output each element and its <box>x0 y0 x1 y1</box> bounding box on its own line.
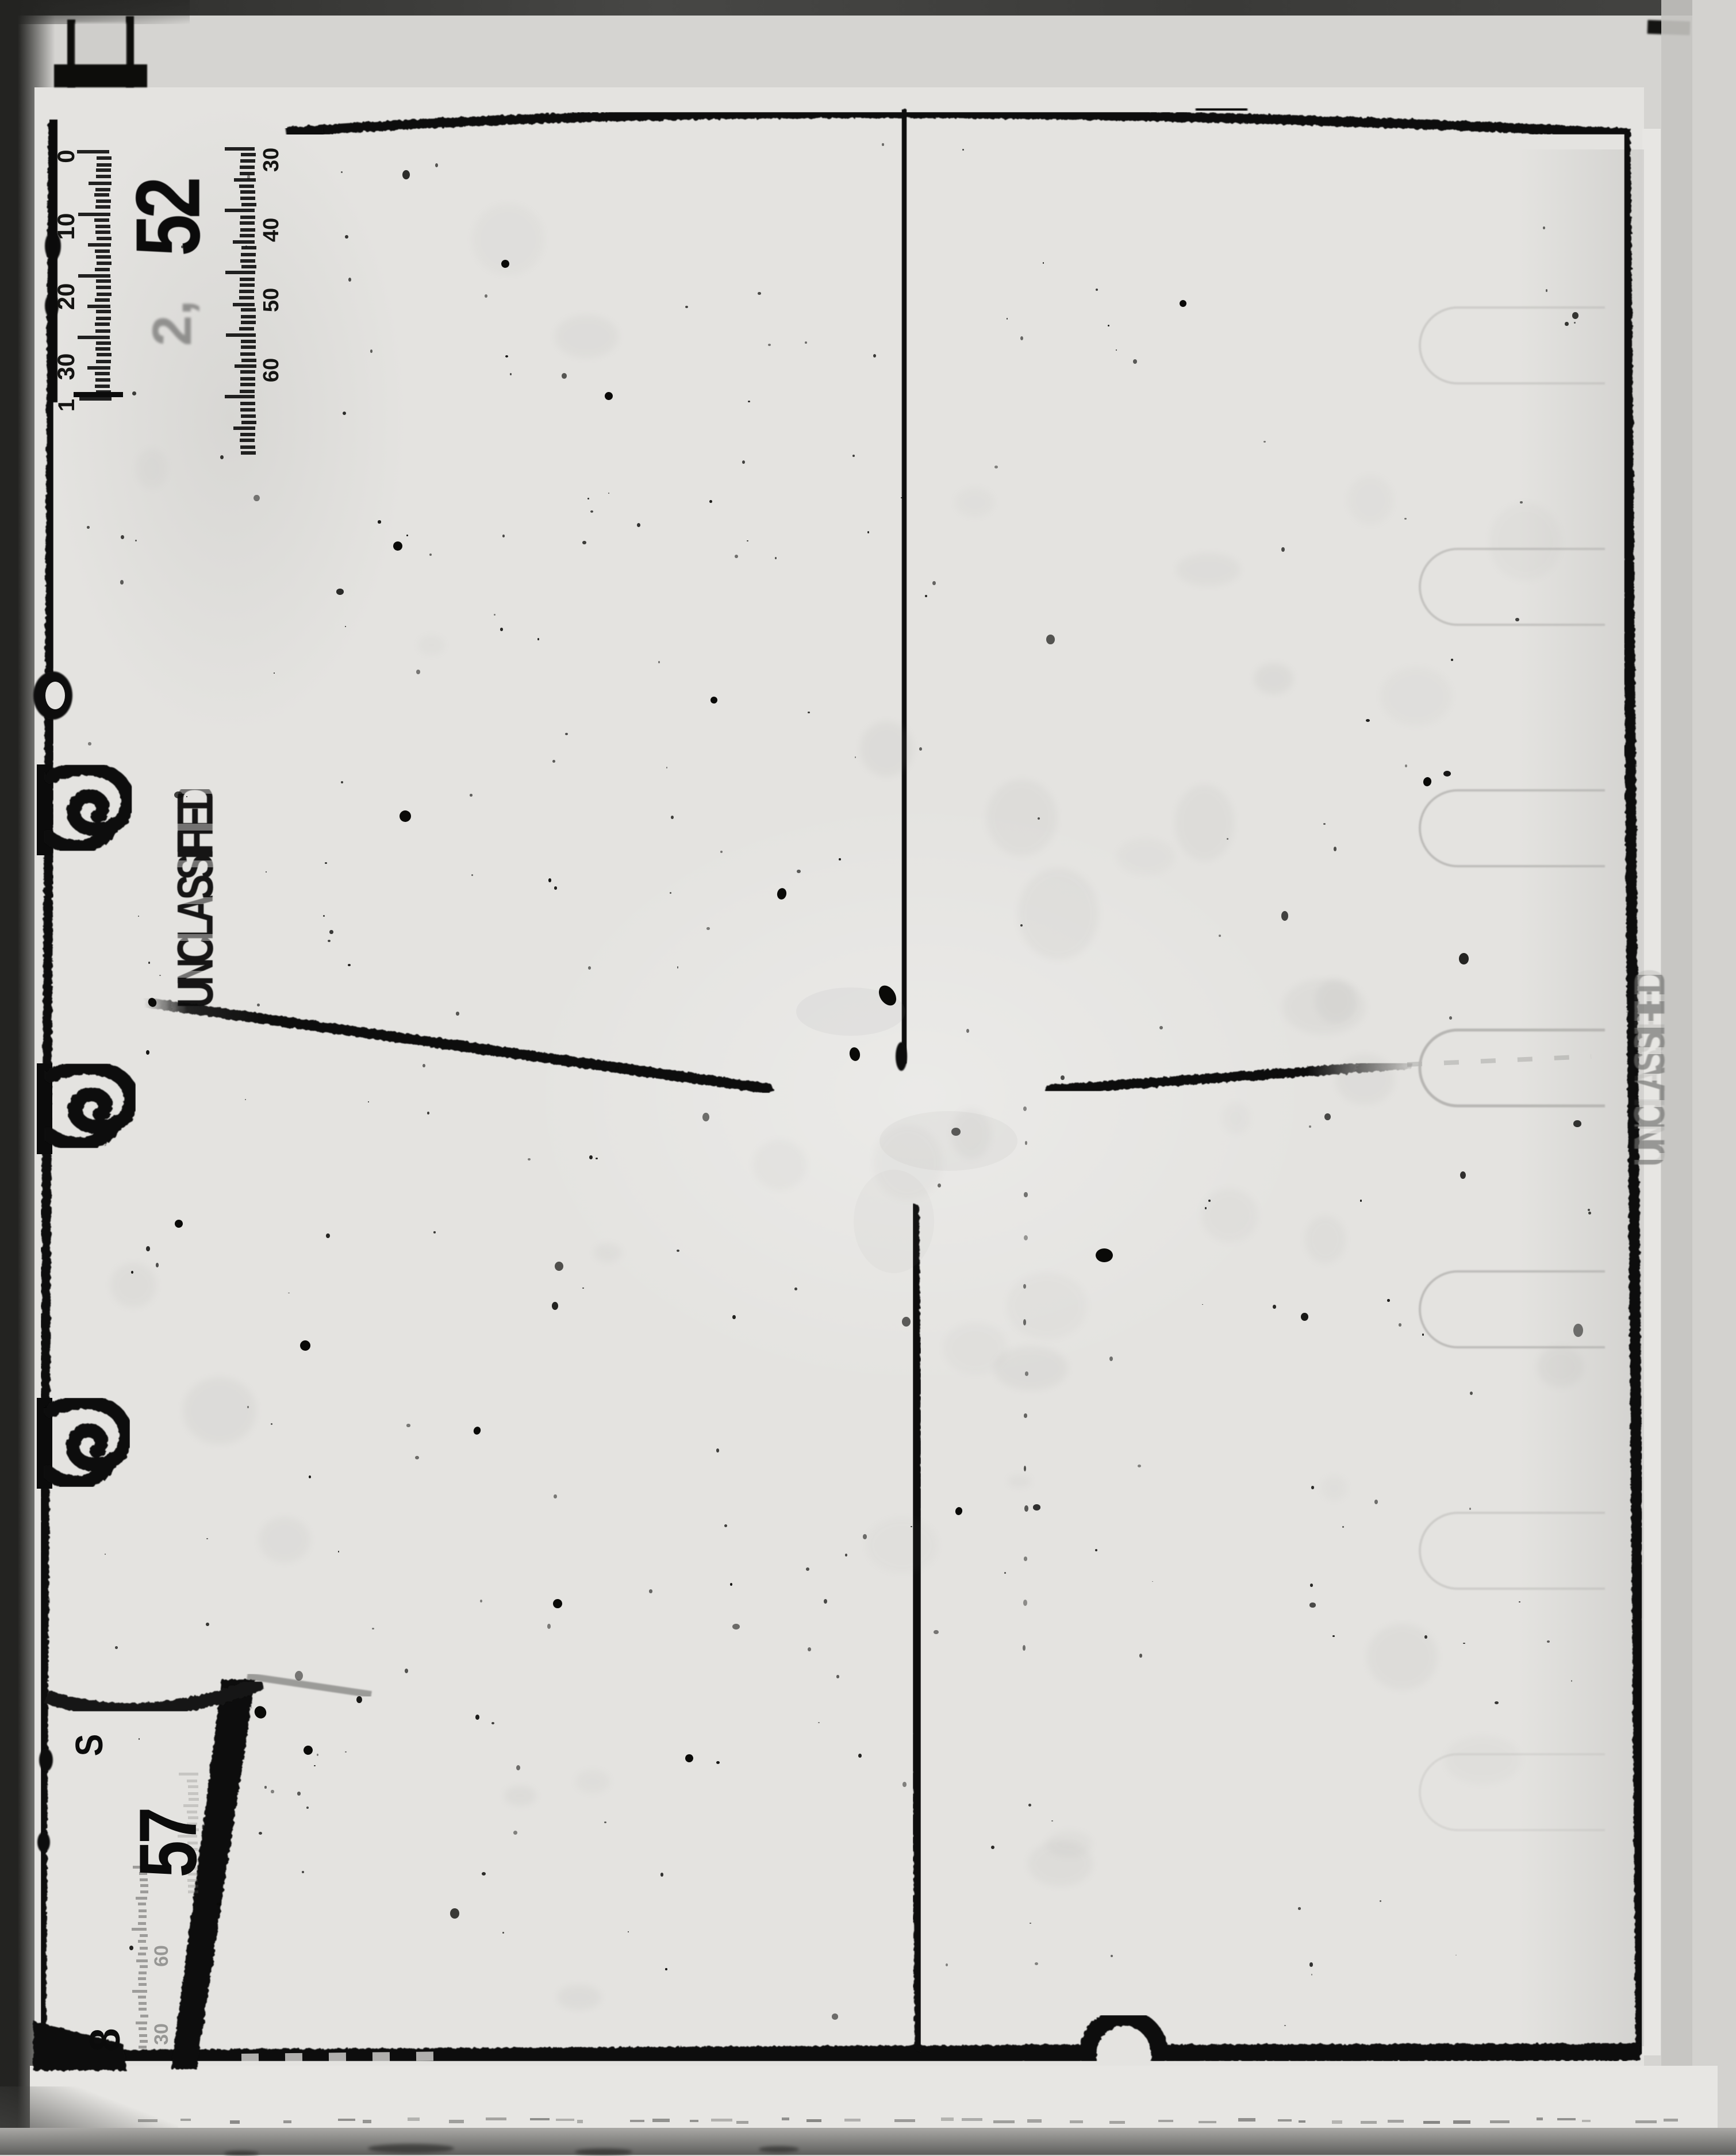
speckle <box>925 595 927 597</box>
ruler-tick <box>96 279 111 283</box>
edge-dash <box>941 2117 954 2121</box>
speckle <box>146 1246 150 1251</box>
ruler-tick <box>136 1897 147 1900</box>
ruler-tick <box>139 2008 147 2011</box>
ruler-tick <box>240 166 255 169</box>
ruler-tick <box>139 2034 147 2037</box>
ruler-tick <box>96 175 111 178</box>
edge-dash <box>1537 2117 1543 2120</box>
edge-dash <box>1238 2118 1256 2122</box>
speckle <box>159 249 161 251</box>
mottle <box>418 635 445 655</box>
speckle <box>513 1831 517 1834</box>
speckle <box>341 171 343 173</box>
speckle <box>206 1538 208 1539</box>
speckle <box>343 412 346 415</box>
ruler-tick <box>96 255 111 259</box>
edge-hook-icon <box>37 1398 126 1489</box>
ruler-tick <box>136 2022 147 2024</box>
trail-dot <box>1023 1319 1026 1325</box>
mottle <box>955 487 994 517</box>
speckle <box>1405 764 1407 767</box>
edge-dash <box>363 2120 371 2123</box>
speckle <box>1574 322 1576 324</box>
ruler-tick <box>97 293 112 296</box>
speckle <box>1572 312 1578 319</box>
mottle <box>1489 503 1562 581</box>
ruler-tick <box>241 340 256 343</box>
speckle <box>1310 1584 1313 1587</box>
ruler-tick <box>78 274 110 278</box>
mottle <box>1380 667 1452 726</box>
speckle <box>1208 1200 1211 1202</box>
plate-number-top: 52 <box>121 162 214 276</box>
ruler-tick <box>96 360 111 363</box>
ruler-tick <box>138 1922 146 1925</box>
ruler-tick <box>241 359 256 362</box>
ruler-tick <box>226 333 256 337</box>
speckle <box>1033 1504 1040 1510</box>
trail-dot <box>1024 1505 1028 1512</box>
ruler-tick <box>95 298 110 302</box>
edge-dash <box>1361 2121 1377 2124</box>
speckle <box>670 892 671 894</box>
speckle <box>991 1846 994 1849</box>
plate-bottom-border <box>37 2017 1640 2059</box>
speckle <box>706 927 710 931</box>
ruler-tick <box>96 286 111 289</box>
corner-notch-top-streak <box>247 1676 371 1694</box>
edge-dash <box>1199 2121 1216 2124</box>
speckle <box>1543 226 1545 229</box>
speckle <box>730 1583 732 1586</box>
speckle <box>1109 1356 1113 1361</box>
ruler-corner-label: 30 <box>147 2021 176 2047</box>
ruler-corner-label: 60 <box>147 1943 176 1969</box>
mottle <box>1537 1346 1584 1388</box>
speckle <box>608 493 609 494</box>
speckle <box>156 1263 159 1267</box>
ruler-tick <box>138 1903 146 1905</box>
speckle <box>433 1231 436 1233</box>
speckle <box>295 1671 303 1681</box>
ruler-tick <box>139 2002 147 2005</box>
speckle <box>818 1722 820 1723</box>
ruler-tick <box>240 259 255 263</box>
mottle <box>183 1377 256 1444</box>
crosshair-top-line <box>902 109 907 1063</box>
ruler-tick <box>139 1915 147 1918</box>
trail-dot <box>1024 1192 1027 1197</box>
ruler-tick <box>96 168 111 172</box>
ruler-tick <box>95 268 110 271</box>
ghost-tab-outline <box>1420 308 1605 383</box>
mottle <box>1176 553 1240 586</box>
speckle <box>1366 719 1370 722</box>
ruler-tick <box>225 209 255 212</box>
ghost-tab-outline <box>1420 1513 1605 1589</box>
ruler-tick <box>240 172 255 175</box>
ruler-tick <box>240 234 255 237</box>
speckle <box>435 163 438 167</box>
ruler-tick <box>179 1773 198 1775</box>
scan-page: { "page": { "background": "#d5d4d1", "pl… <box>0 0 1736 2155</box>
ruler-tick <box>225 147 255 151</box>
speckle <box>582 1288 584 1289</box>
speckle <box>867 531 869 533</box>
ruler-tick <box>233 426 255 430</box>
speckle <box>677 1250 679 1252</box>
speckle <box>120 580 124 585</box>
ruler-tick <box>240 278 255 281</box>
speckle <box>415 1456 419 1459</box>
speckle <box>345 235 348 239</box>
speckle <box>247 175 250 179</box>
mottle <box>136 448 168 489</box>
speckle <box>685 306 688 308</box>
ruler-tick <box>88 243 111 247</box>
edge-dash <box>1070 2120 1083 2123</box>
speckle <box>274 672 275 674</box>
edge-dash <box>556 2119 574 2121</box>
speckle <box>257 1004 259 1006</box>
ruler-tick <box>140 1965 148 1968</box>
speckle <box>1387 1299 1389 1302</box>
edge-dash <box>138 2119 158 2122</box>
ruler-tick <box>139 2046 147 2049</box>
speckle <box>105 1554 106 1555</box>
ruler-tick <box>95 225 110 228</box>
speckle <box>1139 1654 1142 1658</box>
speckle <box>716 1448 720 1452</box>
speckle <box>732 1315 736 1319</box>
ruler-tick <box>95 188 110 191</box>
edge-dash <box>1158 2120 1173 2122</box>
film-tab-inner <box>75 23 126 66</box>
speckle <box>516 1765 520 1770</box>
ruler-tick <box>138 1996 146 1999</box>
edge-dash <box>530 2118 550 2120</box>
speckle <box>797 870 801 874</box>
speckle <box>217 1903 221 1905</box>
speckle <box>637 523 640 527</box>
ruler-tick <box>233 303 255 306</box>
ruler-tick <box>97 237 112 240</box>
speckle <box>702 1113 709 1121</box>
speckle <box>329 930 333 934</box>
speckle <box>1469 1508 1471 1510</box>
ruler-tick <box>239 185 254 188</box>
ruler-tick <box>239 327 254 330</box>
speckle <box>747 540 748 541</box>
speckle <box>671 816 674 819</box>
edge-dash <box>1027 2119 1041 2122</box>
speckle <box>794 1288 797 1290</box>
ruler-tick <box>95 205 110 209</box>
speckle <box>1460 1171 1466 1179</box>
ruler-tick <box>140 1934 148 1937</box>
ruler-tick <box>87 366 110 370</box>
mottle <box>1347 475 1393 525</box>
ruler-tick <box>132 1990 147 1993</box>
speckle <box>406 1424 410 1427</box>
ruler-tick <box>95 385 110 388</box>
mottle <box>575 1770 610 1793</box>
ruler-tick <box>140 2040 148 2043</box>
ruler-tick <box>240 221 255 225</box>
mottle <box>1367 1624 1438 1690</box>
speckle <box>562 373 567 379</box>
speckle <box>186 796 187 797</box>
speckle <box>456 1012 459 1015</box>
speckle <box>264 1786 267 1788</box>
ruler-tick <box>240 190 255 194</box>
edge-hook-icon <box>37 764 128 855</box>
crosshair-bottom-line <box>913 1209 920 2046</box>
ruler-tick <box>138 1977 146 1980</box>
ruler-tick <box>240 433 255 436</box>
trail-dot <box>1024 1413 1027 1418</box>
ruler-tick <box>240 445 255 449</box>
edge-dash <box>690 2120 698 2122</box>
speckle <box>1399 1323 1402 1327</box>
speckle <box>1519 1601 1520 1602</box>
speckle <box>1205 1207 1206 1209</box>
edge-dash <box>962 2118 982 2121</box>
ruler-tick <box>96 341 111 345</box>
speckle <box>528 1158 531 1160</box>
ruler-tick <box>241 345 256 349</box>
speckle <box>245 1099 246 1100</box>
speckle <box>1227 838 1228 840</box>
mottle <box>873 1125 942 1200</box>
ruler-tick <box>97 156 112 160</box>
ruler-tick <box>78 336 110 339</box>
ruler-tick <box>94 218 109 222</box>
ruler-secondary-label: 50 <box>255 285 287 315</box>
speckle <box>547 1624 551 1628</box>
border-nub <box>37 1832 50 1853</box>
edge-dash <box>230 2120 240 2124</box>
ruler-primary-terminal-tick <box>74 392 123 397</box>
ruler-tick <box>240 216 255 219</box>
speckle <box>502 1932 504 1934</box>
crosshair-right-arm-fade <box>1407 1056 1591 1064</box>
speckle <box>1051 1820 1053 1821</box>
mottle <box>259 1517 310 1563</box>
ruler-tick <box>241 451 256 455</box>
ruler-primary-terminal-label: 1 <box>53 394 80 417</box>
speckle <box>356 1696 362 1703</box>
mottle <box>1282 979 1366 1035</box>
trail-dot <box>1024 1557 1028 1561</box>
edge-dash <box>652 2119 670 2122</box>
mottle <box>753 1140 806 1190</box>
speckle <box>1424 1635 1427 1639</box>
edge-dash <box>338 2119 355 2121</box>
speckle <box>1332 1635 1335 1638</box>
ruler-tick <box>94 193 109 197</box>
speckle <box>1133 359 1137 364</box>
speckle <box>336 589 344 595</box>
edge-dash <box>1582 2120 1590 2122</box>
edge-dash <box>993 2120 1015 2123</box>
ruler-tick <box>95 372 110 375</box>
ruler-tick <box>188 1792 198 1795</box>
ruler-tick <box>97 262 112 265</box>
ruler-tick <box>240 197 255 200</box>
ruler-primary-label: 30 <box>49 353 83 380</box>
ruler-secondary-label: 40 <box>255 215 287 245</box>
ruler-tick <box>96 199 111 203</box>
speckle <box>245 245 247 247</box>
mottle <box>1007 1273 1088 1339</box>
mottle <box>1018 868 1099 959</box>
speckle <box>1546 289 1547 291</box>
speckle <box>1565 322 1569 326</box>
speckle <box>247 1406 249 1408</box>
speckle <box>494 614 496 616</box>
ruler-tick <box>240 408 255 412</box>
edge-dash <box>1423 2121 1440 2124</box>
corner-digit: 8 <box>83 2018 126 2062</box>
ruler-tick <box>138 1953 146 1955</box>
speckle <box>596 1158 597 1159</box>
ruler-tick <box>235 364 256 368</box>
ruler-tick <box>132 1928 147 1931</box>
edge-dash <box>844 2119 860 2121</box>
ghost-tab-outline <box>1420 790 1605 866</box>
speckle <box>348 964 351 966</box>
speckle <box>1404 518 1407 520</box>
ruler-tick <box>241 246 256 249</box>
ruler-tick <box>95 230 110 234</box>
edge-dash <box>408 2117 420 2120</box>
speckle <box>1573 1120 1581 1127</box>
ruler-tick <box>234 178 256 182</box>
edge-dash <box>1299 2120 1305 2123</box>
speckle <box>328 940 331 942</box>
ruler-tick <box>140 1890 148 1893</box>
ruler-tick <box>240 228 255 232</box>
speckle <box>852 455 855 457</box>
speckle <box>1324 1113 1331 1121</box>
trail-dot <box>1024 1235 1028 1240</box>
speckle <box>302 1871 304 1873</box>
mottle <box>557 1985 601 2010</box>
speckle <box>1547 1640 1550 1643</box>
edge-dash <box>577 2120 583 2123</box>
ruler-tick <box>96 317 111 320</box>
speckle <box>590 510 593 513</box>
ruler-tick <box>95 249 110 253</box>
trail-dot <box>1025 1371 1029 1375</box>
trail-dot <box>1025 1141 1027 1145</box>
ruler-tick <box>241 421 256 424</box>
crosshair-top-line-tip <box>896 1042 907 1071</box>
speckle <box>1273 1305 1276 1309</box>
edge-dash <box>1490 2120 1510 2124</box>
mottle <box>860 721 914 777</box>
ruler-primary-label: 10 <box>49 213 83 240</box>
ruler-tick <box>240 159 255 163</box>
ruler-tick <box>240 439 255 442</box>
edge-dash <box>630 2120 644 2122</box>
speckle <box>934 1630 939 1635</box>
speckle <box>1588 1212 1591 1215</box>
ruler-tick <box>240 383 255 386</box>
speckle <box>1588 1209 1590 1211</box>
edge-dash <box>1635 2120 1656 2123</box>
speckle <box>677 966 678 968</box>
speckle <box>932 581 936 585</box>
speckle <box>946 1963 948 1966</box>
ruler-tick <box>240 402 255 405</box>
ruler-tick <box>239 290 254 293</box>
mottle <box>1222 1102 1250 1135</box>
ruler-tick <box>138 1940 146 1943</box>
edge-dash <box>1278 2119 1292 2122</box>
speckle <box>902 1782 906 1787</box>
ruler-tick <box>241 321 256 324</box>
ruler-secondary-label: 30 <box>255 145 287 175</box>
speckle <box>1520 501 1523 504</box>
ruler-tick <box>139 1983 147 1986</box>
ruler-tick <box>140 1947 148 1950</box>
ruler-tick <box>241 153 256 156</box>
speckle <box>423 1064 425 1067</box>
edge-hook-icon <box>37 1063 132 1154</box>
ruler-tick <box>240 283 255 287</box>
speckle <box>405 1669 408 1673</box>
ruler-tick <box>188 1785 198 1788</box>
speckle <box>368 1101 369 1102</box>
ruler-tick <box>187 1780 197 1782</box>
speckle <box>297 1792 301 1795</box>
unclassified-stamp: UNCLASSIFIED <box>166 789 224 1008</box>
ruler-tick <box>241 265 256 268</box>
mottle <box>555 315 618 358</box>
ruler-tick <box>140 2015 148 2017</box>
ruler-tick <box>96 310 111 313</box>
ruler-tick <box>87 305 110 308</box>
speckle <box>1459 953 1469 964</box>
ruler-primary-label: 20 <box>49 283 83 310</box>
speckle <box>1004 1572 1006 1574</box>
speckle <box>402 170 410 179</box>
ruler-tick <box>97 353 112 356</box>
edge-dash <box>1332 2120 1342 2124</box>
speckle <box>709 500 712 503</box>
speckle <box>1463 1643 1465 1644</box>
ruler-tick <box>225 395 255 398</box>
speckle <box>845 1554 847 1557</box>
speckle <box>742 460 745 464</box>
speckle <box>863 1534 867 1539</box>
mottle <box>1305 1216 1346 1263</box>
mottle <box>504 1786 536 1805</box>
corner-letter: S <box>67 1727 111 1763</box>
ghost-tab-outline <box>1420 1030 1605 1106</box>
speckle <box>1380 1900 1381 1902</box>
mottle <box>1254 663 1293 694</box>
speckle <box>1219 935 1221 937</box>
border-nub <box>39 1748 53 1771</box>
mottle <box>986 779 1057 856</box>
speckle <box>1334 847 1337 851</box>
speckle <box>582 541 586 545</box>
mottle <box>1335 1054 1395 1105</box>
